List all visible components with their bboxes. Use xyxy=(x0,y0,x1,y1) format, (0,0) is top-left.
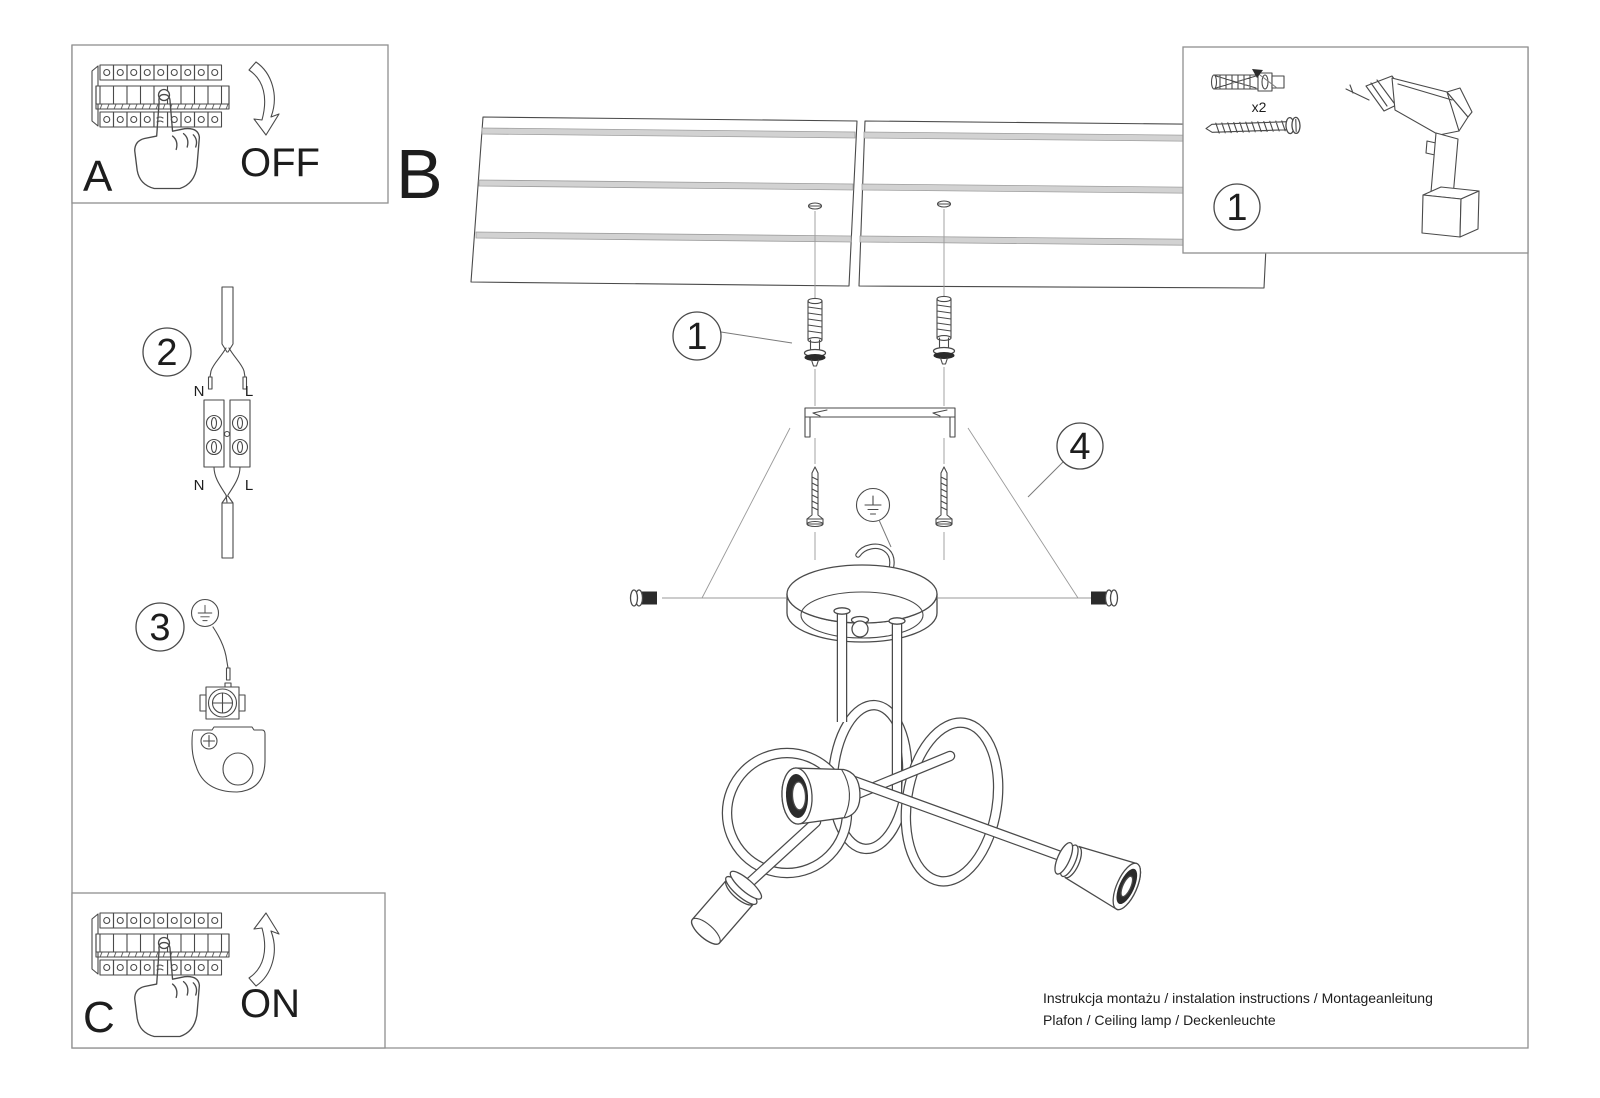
callout-tools-number: 1 xyxy=(1226,187,1247,229)
callout-ground-number: 3 xyxy=(149,607,170,649)
ceiling-panel-left xyxy=(471,117,857,286)
ground-bracket-plate xyxy=(192,727,265,792)
terminal-block xyxy=(204,400,250,467)
label-n-bottom: N xyxy=(194,477,205,494)
step-a-label: A xyxy=(83,152,113,201)
lamp-socket-center xyxy=(781,765,862,825)
ground-step: 3 xyxy=(136,600,265,793)
power-on-step-box: C ON xyxy=(72,893,385,1048)
supply-cable-top xyxy=(209,287,247,389)
ceiling-panels xyxy=(471,117,1272,288)
wall-plug xyxy=(805,296,955,366)
label-l-bottom: L xyxy=(245,477,253,494)
tools-box: x2 1 xyxy=(1183,47,1528,253)
footer-text: Instrukcja montażu / instalation instruc… xyxy=(1043,990,1433,1028)
callout-anchors: 1 xyxy=(673,312,792,360)
ground-symbol-small-icon xyxy=(192,600,219,627)
supply-cable-bottom xyxy=(214,467,240,558)
lamp-arms xyxy=(727,612,1066,888)
mounting-bracket xyxy=(805,408,955,437)
step-b-label: B xyxy=(396,135,443,213)
lamp-socket-right xyxy=(1048,833,1146,913)
ground-wire-hook xyxy=(858,546,892,567)
callout-wiring-number: 2 xyxy=(156,332,177,374)
ground-terminal xyxy=(200,683,245,719)
footer-line-2: Plafon / Ceiling lamp / Deckenleuchte xyxy=(1043,1012,1276,1028)
step-c-label: C xyxy=(83,993,115,1042)
off-label: OFF xyxy=(240,141,320,185)
label-l-top: L xyxy=(245,383,253,400)
callout-bracket: 4 xyxy=(1028,423,1103,497)
side-screw-left xyxy=(631,590,658,606)
instruction-sheet: 1 4 B A OFF C ON xyxy=(0,0,1600,1098)
ceiling-lamp xyxy=(631,565,1147,950)
callout-anchors-number: 1 xyxy=(686,316,707,358)
callout-bracket-number: 4 xyxy=(1069,426,1090,468)
footer-line-1: Instrukcja montażu / instalation instruc… xyxy=(1043,990,1433,1006)
ground-symbol-icon xyxy=(857,489,892,548)
side-screw-right xyxy=(1091,590,1118,606)
power-off-step-box: A OFF xyxy=(72,45,388,203)
ground-wire xyxy=(213,627,228,668)
label-n-top: N xyxy=(194,383,205,400)
callout-tools: 1 xyxy=(1214,184,1260,230)
quantity-label: x2 xyxy=(1252,99,1267,115)
on-label: ON xyxy=(240,982,300,1026)
wiring-diagram: 2 N L N L xyxy=(143,287,253,558)
